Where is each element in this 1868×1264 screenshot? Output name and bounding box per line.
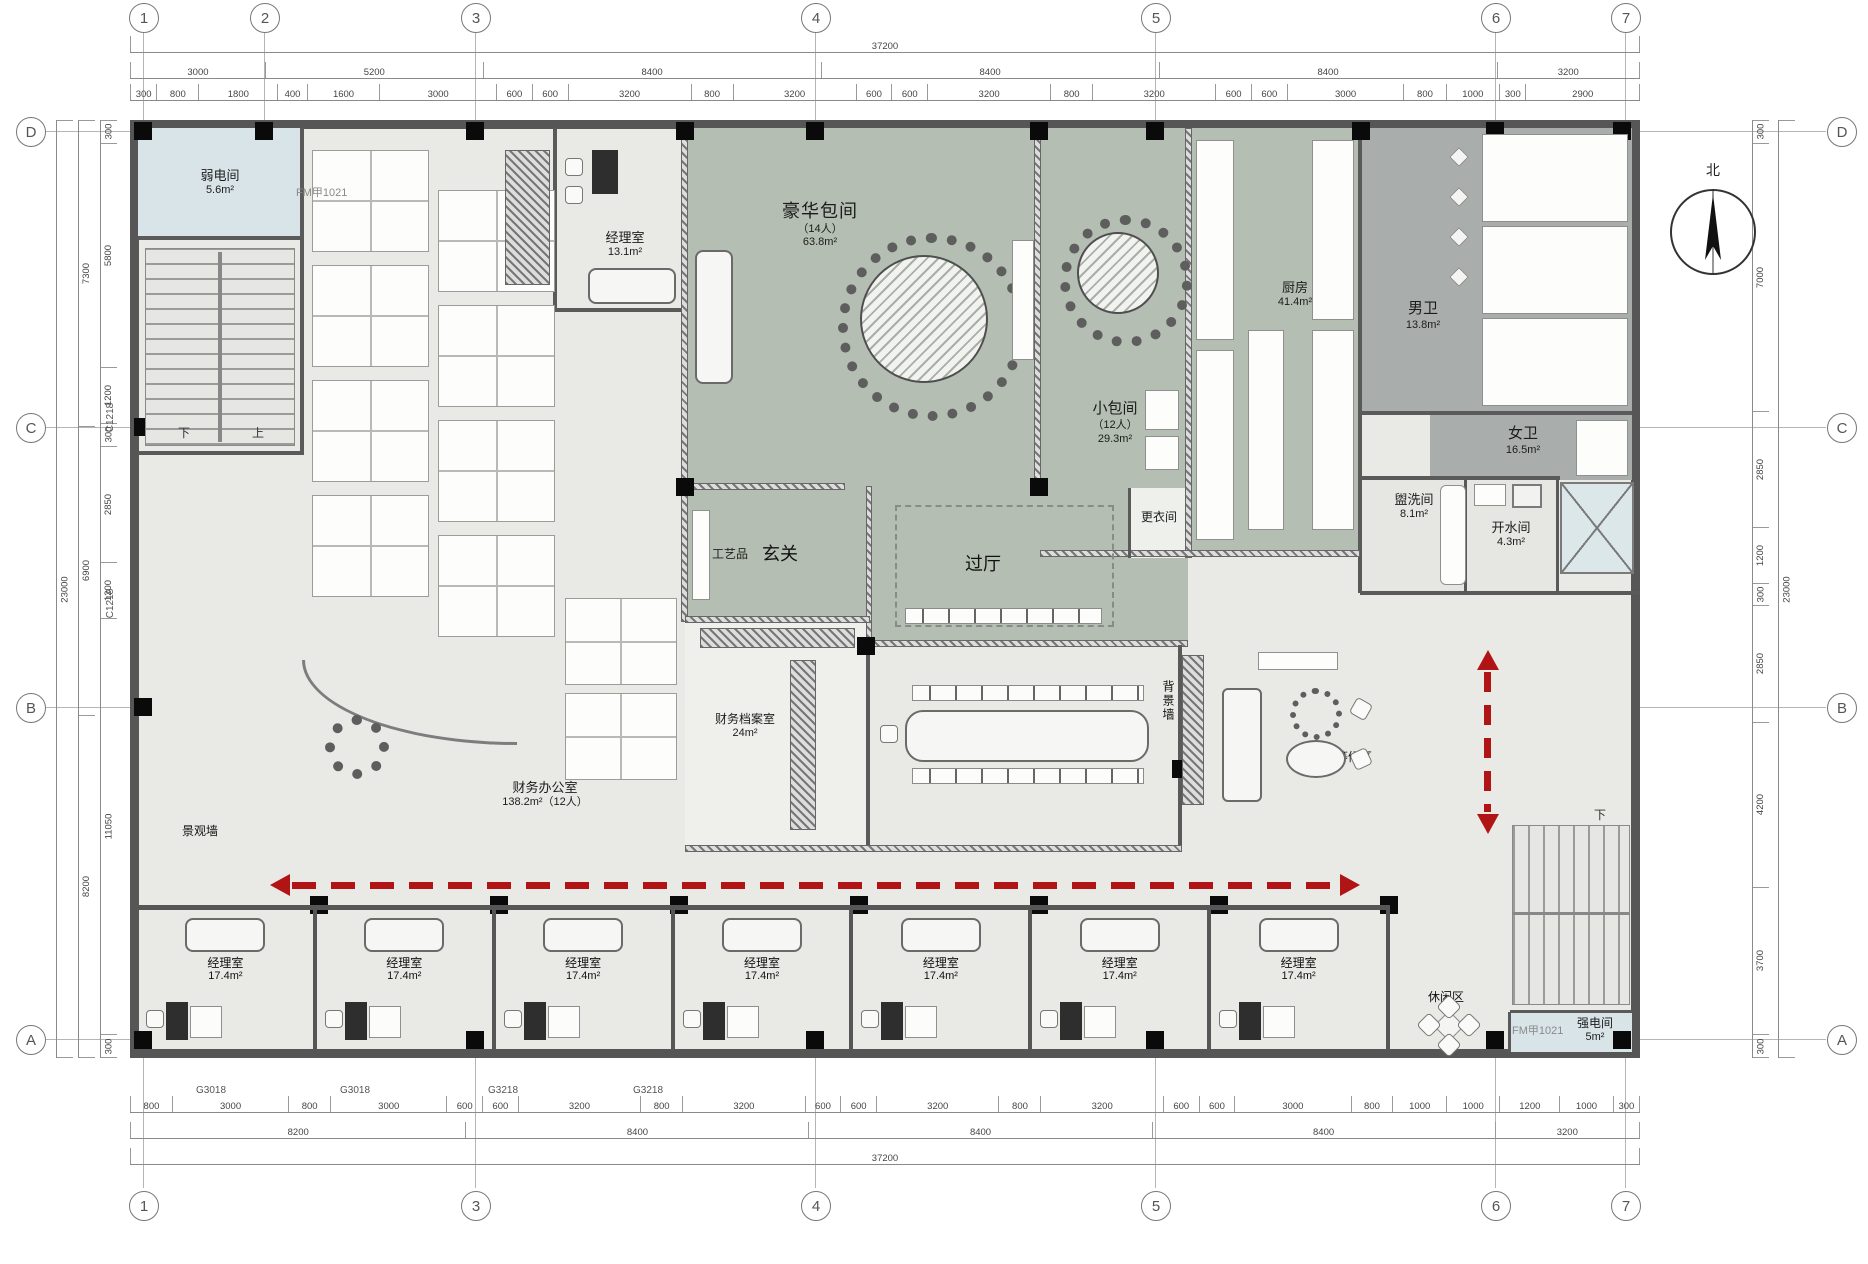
dim-value: 600 <box>482 1096 518 1112</box>
dim-value: 800 <box>691 84 733 100</box>
office-desk-return <box>190 1006 222 1038</box>
room-name: 更衣间 <box>1141 510 1177 525</box>
room-luxury-label: 豪华包间 （14人） 63.8m² <box>745 200 895 250</box>
column <box>1030 122 1048 140</box>
stair-down-label: 下 <box>178 424 190 441</box>
wall-hatched <box>685 483 845 490</box>
dim-bottom-detail: 8003000800300060060032008003200600600320… <box>130 1096 1640 1113</box>
dim-value: 3000 <box>379 84 496 100</box>
office-desk <box>345 1002 367 1040</box>
dim-value: 37200 <box>130 1148 1640 1164</box>
room-name: 经理室 <box>605 230 644 246</box>
dim-value: 300 <box>101 1034 117 1058</box>
sofa <box>588 268 676 304</box>
dim-value: 600 <box>1251 84 1287 100</box>
office-desk <box>703 1002 725 1040</box>
wc-stall <box>1482 226 1628 314</box>
desk-cluster <box>438 535 555 637</box>
dim-value: 3200 <box>568 84 691 100</box>
stair-up-label: 上 <box>252 424 264 441</box>
stairs-bottom-right <box>1512 825 1630 1005</box>
wall-hatched <box>868 640 1188 647</box>
sofa <box>695 250 733 384</box>
room-area: 138.2m²（12人） <box>502 796 588 810</box>
column <box>134 698 152 716</box>
chair <box>861 1010 879 1028</box>
office-desk <box>1060 1002 1082 1040</box>
circulation-arrow-horizontal <box>292 882 1340 889</box>
room-name: 经理室 <box>207 954 243 971</box>
dim-value: 600 <box>446 1096 482 1112</box>
floor-drain <box>1512 484 1542 508</box>
window-code-g3218: G3218 <box>633 1085 663 1096</box>
room-name: 经理室 <box>744 954 780 971</box>
round-dining-table <box>1077 232 1159 314</box>
hall-chairs <box>905 608 1102 624</box>
room-name: 开水间 <box>1491 520 1530 536</box>
dim-value: 800 <box>156 84 198 100</box>
grid-bubble: 7 <box>1611 1191 1641 1221</box>
kitchen-counter <box>1196 350 1234 540</box>
grid-bubble: D <box>16 117 46 147</box>
room-area: 24m² <box>732 727 757 741</box>
dim-value: 600 <box>856 84 892 100</box>
dim-value: 800 <box>1050 84 1092 100</box>
chair <box>565 158 583 176</box>
kitchen-counter <box>1196 140 1234 340</box>
arrow-head-right <box>1340 874 1360 896</box>
grid-bubble: 4 <box>801 3 831 33</box>
grid-line <box>1640 1039 1826 1040</box>
grid-bubble: 6 <box>1481 3 1511 33</box>
wall-hatched <box>685 845 1182 852</box>
grid-bubble: B <box>1827 693 1857 723</box>
room-landscape-label: 景观墙 <box>182 822 218 839</box>
dim-value: 2850 <box>101 446 117 562</box>
column <box>676 122 694 140</box>
sink <box>1474 484 1506 506</box>
chair <box>1219 1010 1237 1028</box>
round-dining-table <box>860 255 988 383</box>
column <box>255 122 273 140</box>
desk-cluster <box>438 305 555 407</box>
window-code-g3018: G3018 <box>340 1085 370 1096</box>
dim-value: 3000 <box>1287 84 1404 100</box>
side-cabinet <box>1012 240 1034 360</box>
circulation-arrow-vertical <box>1484 672 1491 812</box>
room-area: 13.8m² <box>1406 319 1440 333</box>
room-name: 经理室 <box>923 954 959 971</box>
wall <box>866 645 870 850</box>
dim-left-major: 730069008200 <box>78 120 95 1058</box>
dim-value: 8400 <box>465 1122 808 1138</box>
grid-bubble: 7 <box>1611 3 1641 33</box>
room-name: 财务档案室 <box>715 712 775 727</box>
dim-value: 800 <box>130 1096 172 1112</box>
dim-value: 4200 <box>1753 722 1769 887</box>
north-label: 北 <box>1706 162 1720 178</box>
dim-value: 8400 <box>1159 62 1497 78</box>
dim-value: 600 <box>532 84 568 100</box>
dim-value: 7300 <box>79 120 95 426</box>
sofa <box>364 918 444 952</box>
dim-value: 8400 <box>821 62 1159 78</box>
dim-value: 8200 <box>79 715 95 1058</box>
grid-bubble: 1 <box>129 3 159 33</box>
grid-bubble: A <box>16 1025 46 1055</box>
wall <box>300 128 304 455</box>
dim-value: 8400 <box>483 62 821 78</box>
floor-plan-page: 1234567 134567 DCBA DCBA .bubs-top .bub:… <box>0 0 1868 1264</box>
grid-bubble: 5 <box>1141 1191 1171 1221</box>
window-code-g3218: G3218 <box>488 1085 518 1096</box>
dim-value: 800 <box>288 1096 330 1112</box>
wall <box>1360 476 1560 480</box>
room-male-wc-label: 男卫 13.8m² <box>1378 300 1468 333</box>
room-weak-power-label: 弱电间 5.6m² <box>165 168 275 198</box>
dim-value: 3000 <box>330 1096 446 1112</box>
manager-room: 经理室 17.4m² <box>496 910 675 1052</box>
dim-value: 300 <box>1753 120 1769 143</box>
grid-line <box>1640 131 1826 132</box>
door-label-fm-bottom: FM甲1021 <box>1512 1022 1563 1038</box>
room-area: 17.4m² <box>1103 970 1137 982</box>
dim-value: 300 <box>1753 1034 1769 1058</box>
kitchen-counter <box>1312 330 1354 530</box>
dim-value: 3000 <box>172 1096 288 1112</box>
dim-value: 800 <box>1351 1096 1393 1112</box>
cabinet-hatched <box>505 150 550 285</box>
dim-value: 1200 <box>1499 1096 1559 1112</box>
dim-value: 1000 <box>1446 1096 1500 1112</box>
wall-hatched <box>681 128 688 622</box>
chair <box>325 1010 343 1028</box>
dim-right-total: 23000 <box>1778 120 1795 1058</box>
rest-sofa <box>1222 688 1262 802</box>
room-area: 5.6m² <box>206 184 234 198</box>
dim-value: 300 <box>1753 583 1769 606</box>
dim-value: 600 <box>1163 1096 1199 1112</box>
dim-value: 1000 <box>1559 1096 1613 1112</box>
room-name: 弱电间 <box>200 168 239 184</box>
desk-cluster <box>565 598 677 685</box>
room-female-wc-label: 女卫 16.5m² <box>1468 425 1578 458</box>
dim-value: 2900 <box>1525 84 1640 100</box>
dim-value: 300 <box>130 84 156 100</box>
desk-cluster <box>565 693 677 780</box>
desk-cluster <box>312 380 429 482</box>
room-name: 豪华包间 <box>782 200 858 223</box>
wall <box>1358 128 1362 593</box>
sofa <box>901 918 981 952</box>
column <box>1030 478 1048 496</box>
display-cabinet <box>692 510 710 600</box>
dim-value: 3200 <box>682 1096 805 1112</box>
column <box>1146 122 1164 140</box>
wall-hatched <box>685 616 870 623</box>
dim-bottom-total: 37200 <box>130 1148 1640 1165</box>
desk-cluster <box>438 420 555 522</box>
office-desk-return <box>1084 1006 1116 1038</box>
grid-line <box>1640 707 1826 708</box>
dim-value: 300 <box>101 120 117 143</box>
dim-value: 800 <box>640 1096 682 1112</box>
office-desk-return <box>727 1006 759 1038</box>
dim-top-detail: 3008001800400160030006006003200800320060… <box>130 84 1640 101</box>
chair <box>565 186 583 204</box>
dim-value: 1000 <box>1446 84 1500 100</box>
room-area: 17.4m² <box>924 970 958 982</box>
room-area: 17.4m² <box>208 970 242 982</box>
dim-value: 5200 <box>265 62 483 78</box>
room-area: 63.8m² <box>803 236 837 250</box>
room-area: 17.4m² <box>745 970 779 982</box>
door-label-fm-top: FM甲1021 <box>296 184 347 200</box>
chair <box>683 1010 701 1028</box>
round-meeting-table <box>325 715 389 779</box>
dim-left-total: 23000 <box>56 120 73 1058</box>
office-desk-return <box>548 1006 580 1038</box>
chair <box>880 725 898 743</box>
chair <box>504 1010 522 1028</box>
room-area: 17.4m² <box>1281 970 1315 982</box>
sofa <box>1080 918 1160 952</box>
dim-value: 3700 <box>1753 887 1769 1034</box>
grid-bubble: C <box>1827 413 1857 443</box>
sofa <box>543 918 623 952</box>
wall <box>1556 478 1559 593</box>
chair <box>146 1010 164 1028</box>
arrow-head-down <box>1477 814 1499 834</box>
room-area: 29.3m² <box>1098 433 1132 447</box>
room-area: 4.3m² <box>1497 536 1525 550</box>
room-name: 经理室 <box>565 954 601 971</box>
column <box>676 478 694 496</box>
column <box>1352 122 1370 140</box>
desk-cluster <box>312 265 429 367</box>
wall <box>553 308 687 312</box>
wall <box>138 451 302 455</box>
room-name: 男卫 <box>1408 300 1438 319</box>
wall-hatched <box>1185 128 1192 558</box>
dim-value: 3200 <box>1497 62 1640 78</box>
wall <box>1510 1010 1632 1013</box>
room-archives-label: 财务档案室 24m² <box>695 712 795 741</box>
dim-value: 400 <box>277 84 306 100</box>
kitchen-counter <box>1312 140 1354 320</box>
room-area: 8.1m² <box>1400 508 1428 522</box>
room-area: 17.4m² <box>387 970 421 982</box>
office-desk <box>1239 1002 1261 1040</box>
meeting-chairs-top <box>912 685 1144 701</box>
dim-value: 300 <box>1613 1096 1640 1112</box>
dim-value: 6900 <box>79 426 95 716</box>
room-name: 经理室 <box>386 954 422 971</box>
sofa <box>185 918 265 952</box>
grid-bubble: 2 <box>250 3 280 33</box>
dim-value: 23000 <box>1779 120 1795 1058</box>
rest-table <box>1286 740 1346 778</box>
dim-value: 3200 <box>733 84 856 100</box>
dim-value: 600 <box>1199 1096 1235 1112</box>
dim-value: 2850 <box>1753 411 1769 527</box>
dim-value: 23000 <box>57 120 73 1058</box>
room-bg-wall-label: 背景墙 <box>1160 680 1177 722</box>
manager-room: 经理室 17.4m² <box>1211 910 1390 1052</box>
dim-value: 1800 <box>198 84 277 100</box>
dim-value: 1000 <box>1392 1096 1446 1112</box>
grid-line <box>1640 427 1826 428</box>
column <box>134 122 152 140</box>
room-name: 厨房 <box>1282 280 1308 296</box>
room-area: 13.1m² <box>608 246 642 260</box>
manager-room: 经理室 17.4m² <box>317 910 496 1052</box>
room-finance-label: 财务办公室 138.2m²（12人） <box>465 780 625 810</box>
dim-value: 800 <box>1403 84 1445 100</box>
room-crafts-label: 工艺品 <box>712 545 748 562</box>
office-desk <box>881 1002 903 1040</box>
dim-value: 600 <box>805 1096 841 1112</box>
stair-down-label: 下 <box>1594 806 1606 823</box>
dim-value: 1200 <box>1753 527 1769 583</box>
wc-stall <box>1482 134 1628 222</box>
meeting-table <box>905 710 1149 762</box>
dim-value: 3200 <box>927 84 1050 100</box>
dim-value: 1600 <box>307 84 380 100</box>
grid-bubble: 4 <box>801 1191 831 1221</box>
room-name: 强电间 <box>1577 1016 1613 1031</box>
wc-stall <box>1482 318 1628 406</box>
rest-rug <box>1290 688 1342 740</box>
window-code-c1218: C1218 <box>105 403 116 432</box>
dim-value: 800 <box>998 1096 1040 1112</box>
grid-bubble: C <box>16 413 46 443</box>
chair <box>1040 1010 1058 1028</box>
wall <box>1360 591 1640 595</box>
background-wall-hatch <box>1182 655 1204 805</box>
desk-cluster <box>312 495 429 597</box>
archive-shelf <box>700 628 855 648</box>
manager-room: 经理室 17.4m² <box>1032 910 1211 1052</box>
room-name: 女卫 <box>1508 425 1538 444</box>
side-chair <box>1145 390 1179 430</box>
wc-stall <box>1576 420 1628 476</box>
dim-value: 3200 <box>518 1096 641 1112</box>
dim-value: 3200 <box>1495 1122 1640 1138</box>
dim-value: 600 <box>840 1096 876 1112</box>
manager-room: 经理室 17.4m² <box>138 910 317 1052</box>
room-area: 41.4m² <box>1278 296 1312 310</box>
room-name: 经理室 <box>1281 954 1317 971</box>
stair-rail <box>218 252 222 442</box>
office-desk <box>166 1002 188 1040</box>
dim-value: 3000 <box>1234 1096 1350 1112</box>
office-desk-return <box>1263 1006 1295 1038</box>
dim-value: 2850 <box>1753 605 1769 721</box>
wall <box>1360 411 1632 415</box>
room-area: 16.5m² <box>1506 444 1540 458</box>
dim-value: 3200 <box>1092 84 1215 100</box>
kitchen-island <box>1248 330 1284 530</box>
room-capacity: （14人） <box>797 223 842 237</box>
dim-value: 600 <box>1215 84 1251 100</box>
dim-value: 11050 <box>101 618 117 1034</box>
office-desk <box>592 150 618 194</box>
grid-bubble: 1 <box>129 1191 159 1221</box>
dim-value: 37200 <box>130 36 1640 52</box>
room-area: 17.4m² <box>566 970 600 982</box>
office-desk <box>524 1002 546 1040</box>
manager-room: 经理室 17.4m² <box>675 910 854 1052</box>
room-changing-label: 更衣间 <box>1130 510 1188 525</box>
meeting-chairs-bottom <box>912 768 1144 784</box>
column <box>806 122 824 140</box>
column <box>466 122 484 140</box>
tv-cabinet <box>1258 652 1338 670</box>
dim-value: 8200 <box>130 1122 465 1138</box>
window-code-g3018: G3018 <box>196 1085 226 1096</box>
north-compass: 北 <box>1668 160 1758 290</box>
arrow-head-left <box>270 874 290 896</box>
desk-cluster <box>312 150 429 252</box>
grid-bubble: 3 <box>461 3 491 33</box>
grid-bubble: D <box>1827 117 1857 147</box>
office-desk-return <box>905 1006 937 1038</box>
grid-bubble: B <box>16 693 46 723</box>
room-name: 盥洗间 <box>1394 492 1433 508</box>
room-foyer-label: 玄关 <box>762 540 798 566</box>
sofa <box>722 918 802 952</box>
arrow-head-up <box>1477 650 1499 670</box>
room-manager-top-label: 经理室 13.1m² <box>585 230 665 260</box>
dim-value: 8400 <box>1152 1122 1495 1138</box>
office-desk-return <box>369 1006 401 1038</box>
grid-bubble: 5 <box>1141 3 1171 33</box>
archive-shelf <box>790 660 816 830</box>
dim-value: 3000 <box>130 62 265 78</box>
dim-value: 3200 <box>876 1096 999 1112</box>
dim-top-major: 300052008400840084003200 <box>130 62 1640 79</box>
elevator <box>1560 482 1634 574</box>
manager-rooms-row: 经理室 17.4m² 经理室 17.4m² 经理室 17.4m² 经理室 17.… <box>138 905 1390 1052</box>
room-name: 小包间 <box>1092 400 1137 419</box>
dim-value: 3200 <box>1040 1096 1163 1112</box>
wall-hatched <box>1034 128 1041 488</box>
sink-counter <box>1440 485 1466 585</box>
grid-bubble: 6 <box>1481 1191 1511 1221</box>
manager-room: 经理室 17.4m² <box>853 910 1032 1052</box>
window-code-c1218: C1218 <box>105 589 116 618</box>
dim-value: 8400 <box>808 1122 1151 1138</box>
dim-top-total: 37200 <box>130 36 1640 53</box>
dim-value: 600 <box>891 84 927 100</box>
room-water-label: 开水间 4.3m² <box>1466 520 1556 550</box>
dim-value: 300 <box>1499 84 1525 100</box>
dim-bottom-major: 82008400840084003200 <box>130 1122 1640 1139</box>
room-name: 经理室 <box>1102 954 1138 971</box>
grid-bubble: 3 <box>461 1191 491 1221</box>
room-capacity: （12人） <box>1092 419 1137 433</box>
grid-bubble: A <box>1827 1025 1857 1055</box>
side-table <box>1145 436 1179 470</box>
column <box>857 637 875 655</box>
compass-icon <box>1668 180 1758 284</box>
room-area: 5m² <box>1586 1031 1605 1045</box>
stair-rail <box>1512 912 1630 915</box>
dim-value: 5800 <box>101 143 117 367</box>
room-strong-power-label: 强电间 5m² <box>1560 1016 1630 1045</box>
room-name: 财务办公室 <box>512 780 577 796</box>
